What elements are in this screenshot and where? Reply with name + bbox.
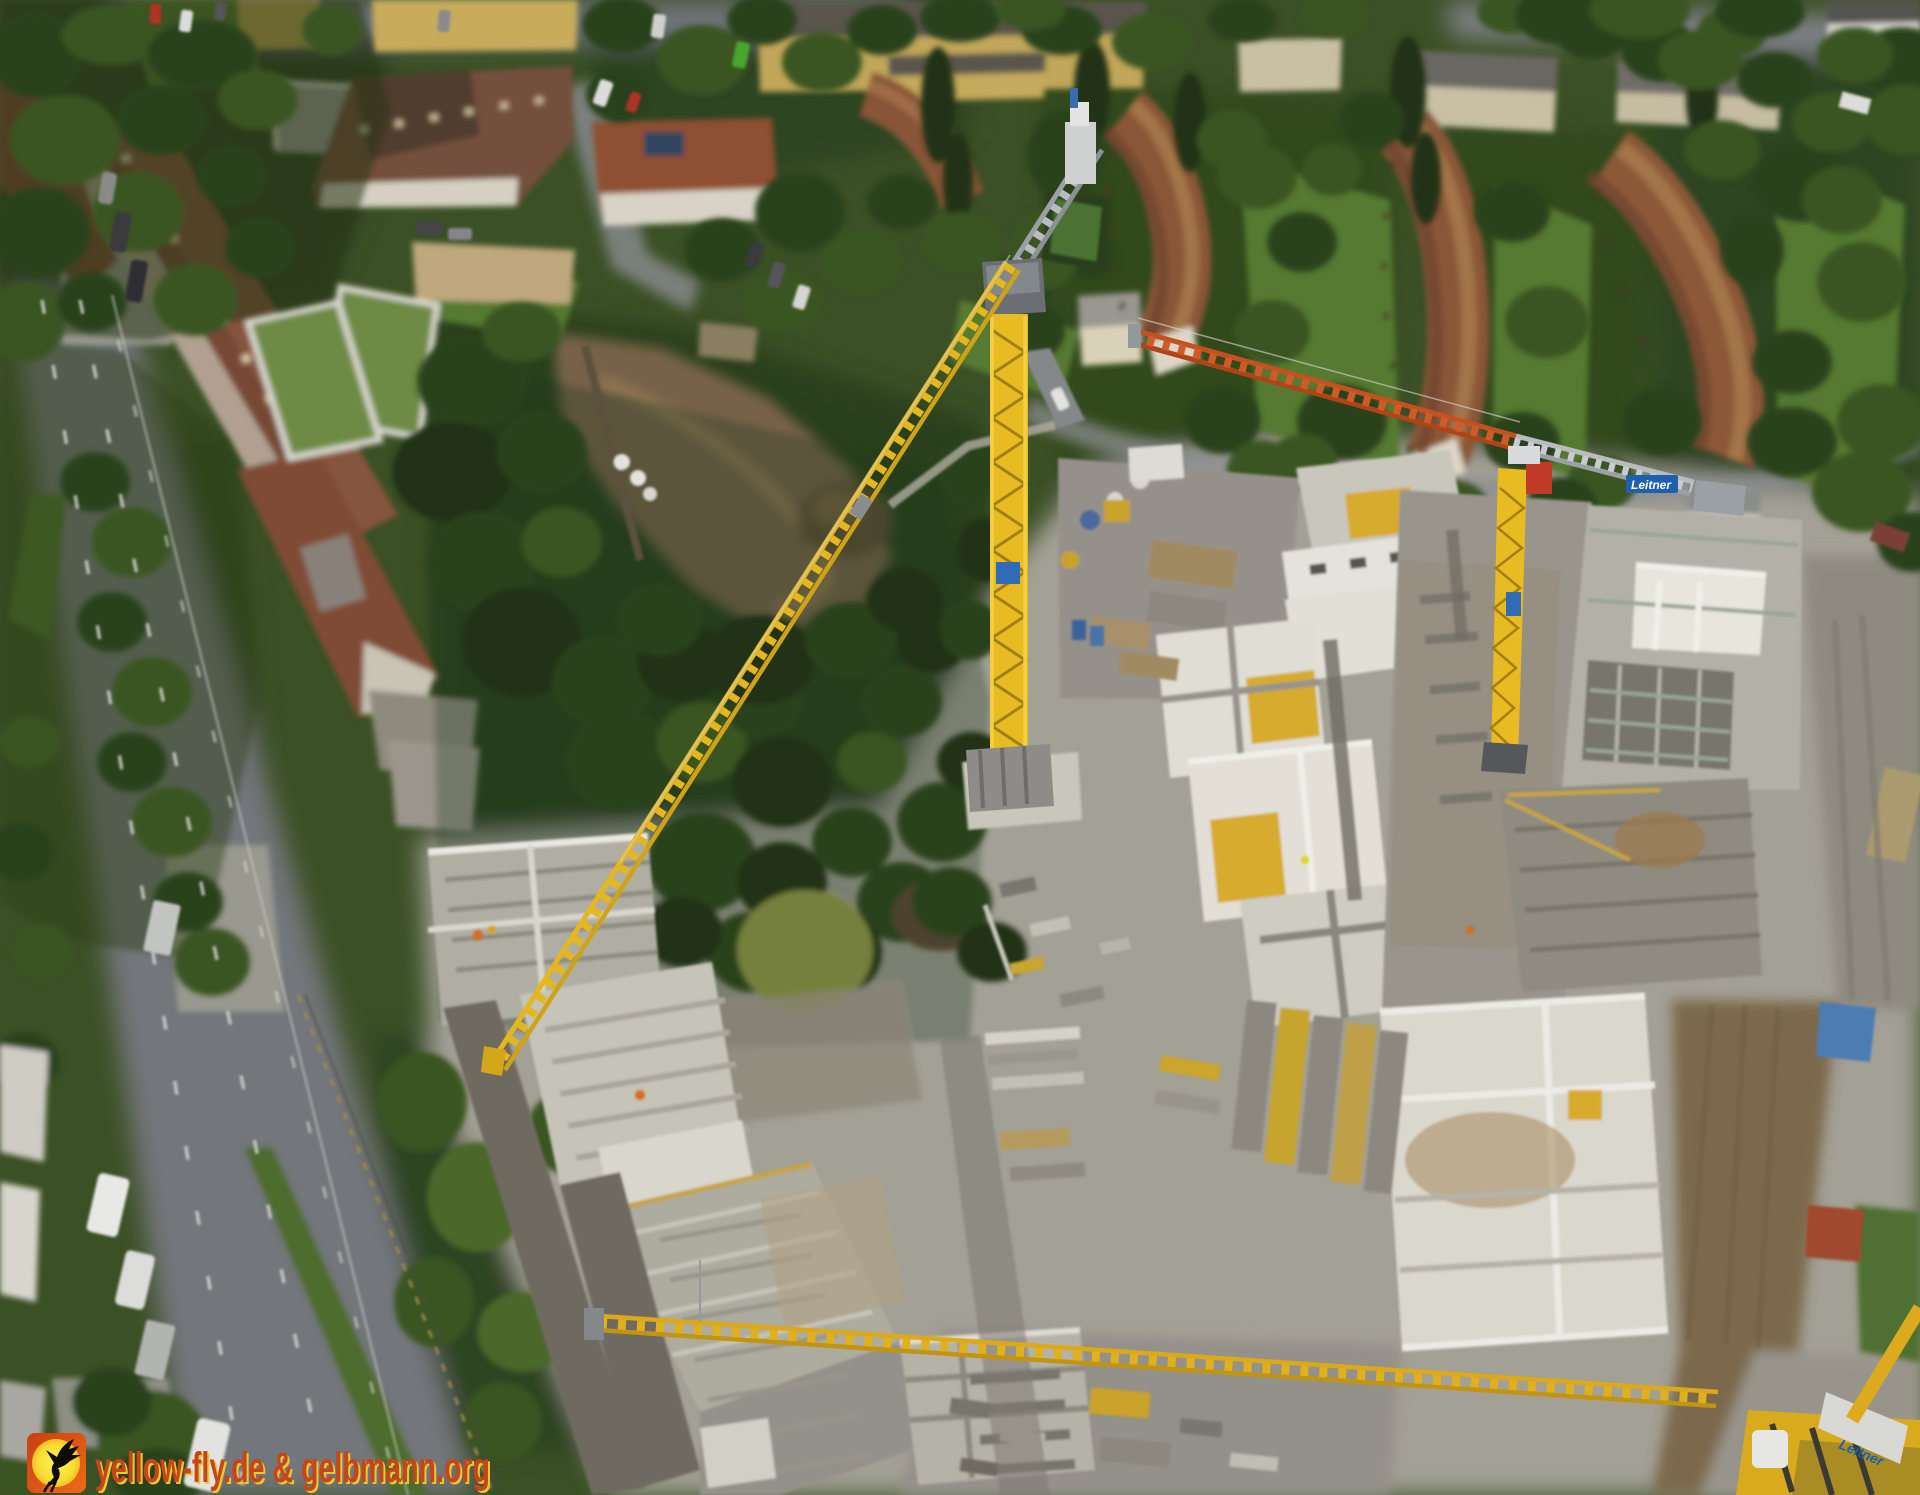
svg-text:yellow-fly.de & gelbmann.org: yellow-fly.de & gelbmann.org	[95, 1444, 490, 1492]
svg-text:Leitner: Leitner	[1631, 478, 1672, 492]
